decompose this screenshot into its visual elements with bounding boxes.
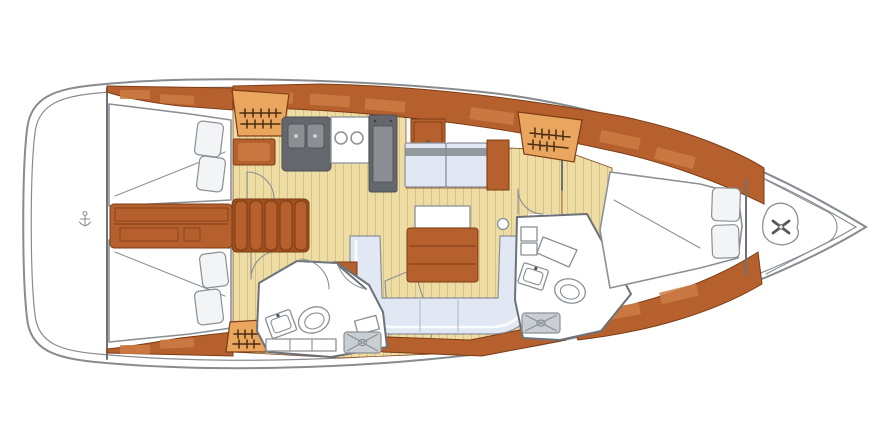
nav-station: Chart table / nav station — [405, 140, 509, 190]
table-leaf — [415, 206, 470, 228]
hanging-locker — [518, 112, 582, 162]
burner-icon — [351, 132, 363, 144]
locker — [487, 140, 509, 190]
saloon-table — [407, 228, 478, 282]
cockpit-locker — [344, 332, 381, 353]
step — [295, 201, 307, 250]
pillow — [196, 156, 226, 193]
pillow — [199, 252, 229, 289]
floor-plan-drawing: Sailing yacht interior floor plan (top v… — [0, 0, 890, 446]
step — [280, 201, 292, 250]
shower-bench — [266, 339, 336, 351]
step — [250, 201, 262, 250]
companionway: Companionway steps — [232, 199, 309, 252]
shelf — [521, 227, 537, 241]
pillow — [711, 188, 740, 222]
burner-icon — [335, 132, 347, 144]
windlass — [763, 203, 799, 245]
pillow — [711, 225, 739, 259]
engine-compartment: Engine compartment — [110, 204, 232, 248]
pillow — [194, 121, 224, 158]
pillow — [194, 289, 224, 326]
mast-post — [498, 219, 509, 230]
cockpit-locker — [522, 313, 560, 333]
step — [265, 201, 277, 250]
shelf — [521, 243, 537, 255]
step — [235, 201, 247, 250]
yacht-floor-plan: Sailing yacht interior floor plan (top v… — [0, 0, 890, 446]
